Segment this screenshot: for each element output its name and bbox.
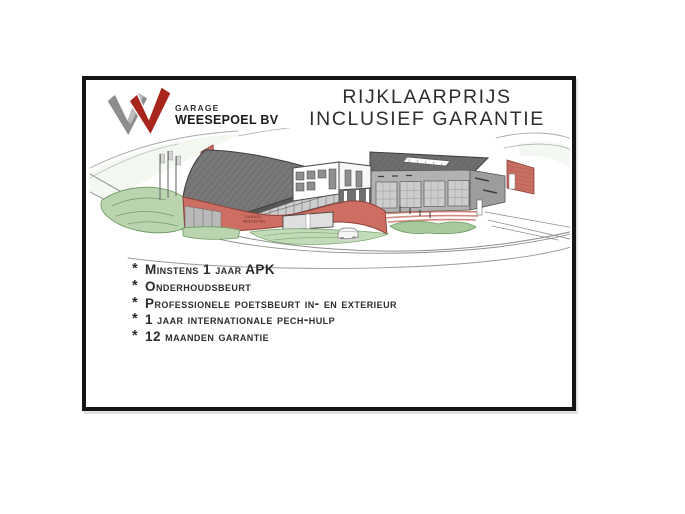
flyer-canvas: GARAGE WEESEPOEL BV RIJKLAARPRIJS INCLUS… (0, 0, 685, 514)
bullet-asterisk: * (132, 278, 145, 295)
bullet-asterisk: * (132, 295, 145, 312)
workshop-building (370, 152, 534, 213)
feature-list: *Minstens 1 jaar APK *Onderhoudsbeurt *P… (132, 262, 397, 346)
logo-garage-label: GARAGE (175, 103, 278, 113)
headline-line2: INCLUSIEF GARANTIE (284, 108, 570, 130)
feature-text: Onderhoudsbeurt (145, 279, 251, 294)
feature-item: *1 jaar internationale pech-hulp (132, 312, 397, 329)
car (337, 228, 359, 241)
feature-text: Minstens 1 jaar APK (145, 262, 275, 277)
bullet-asterisk: * (132, 311, 145, 328)
feature-item: *Minstens 1 jaar APK (132, 262, 397, 279)
garage-building-illustration: GARAGE WEESEPOEL (88, 128, 570, 280)
flyer-frame: GARAGE WEESEPOEL BV RIJKLAARPRIJS INCLUS… (82, 76, 576, 411)
headline: RIJKLAARPRIJS INCLUSIEF GARANTIE (284, 86, 570, 130)
headline-line1: RIJKLAARPRIJS (284, 86, 570, 108)
bullet-asterisk: * (132, 261, 145, 278)
feature-item: *Onderhoudsbeurt (132, 279, 397, 296)
feature-text: 1 jaar internationale pech-hulp (145, 312, 335, 327)
building-sign-line1: GARAGE (245, 215, 262, 219)
left-hedge (101, 187, 192, 233)
bullet-asterisk: * (132, 328, 145, 345)
feature-item: *12 maanden garantie (132, 329, 397, 346)
building-sign-line2: WEESEPOEL (243, 220, 266, 224)
logo-text: GARAGE WEESEPOEL BV (175, 103, 278, 127)
logo-company-name: WEESEPOEL BV (175, 113, 278, 127)
feature-text: Professionele poetsbeurt in- en exterieu… (145, 296, 397, 311)
feature-item: *Professionele poetsbeurt in- en exterie… (132, 296, 397, 313)
feature-text: 12 maanden garantie (145, 329, 269, 344)
